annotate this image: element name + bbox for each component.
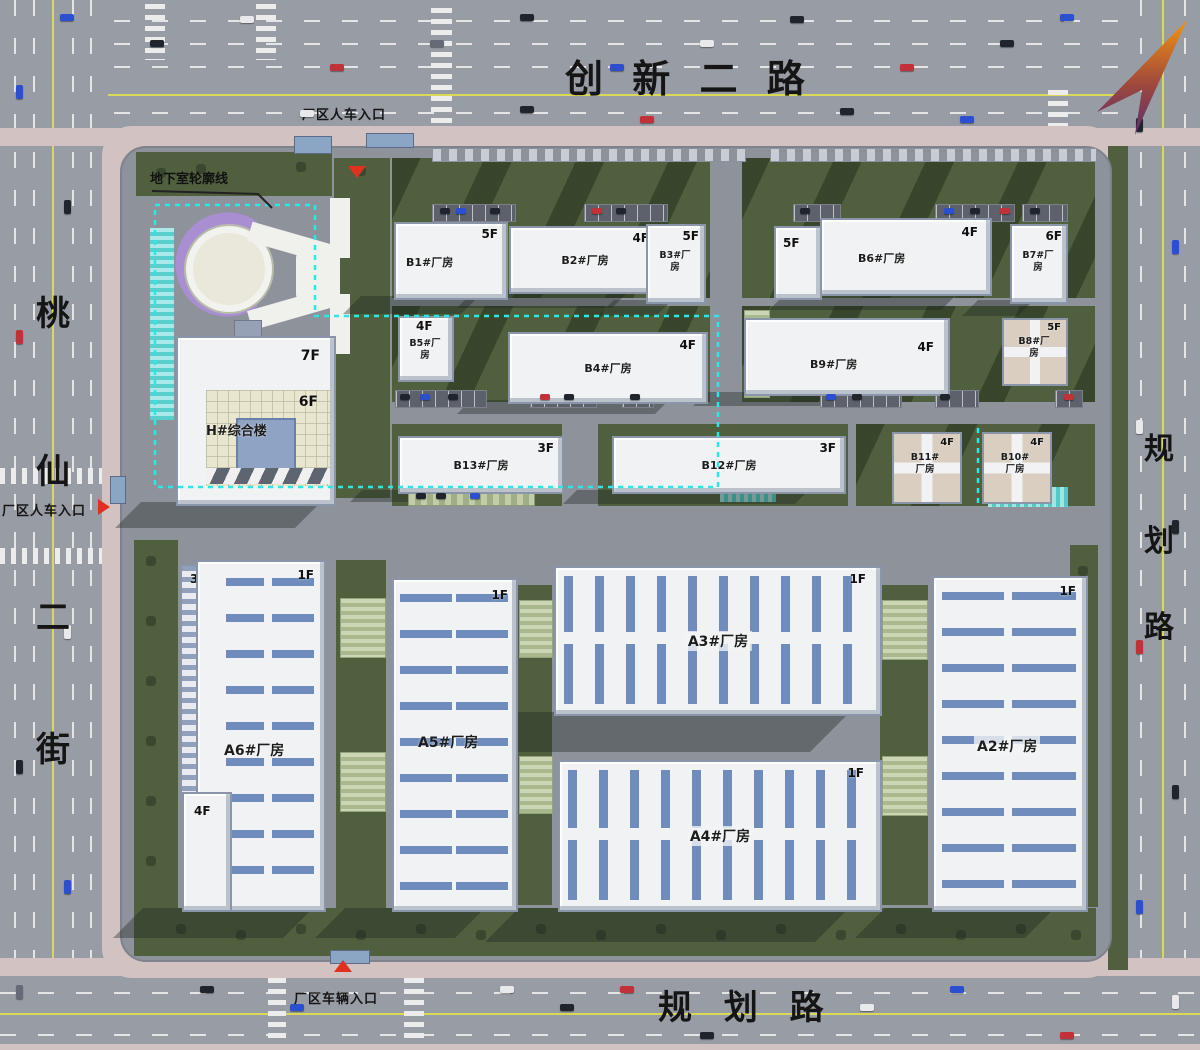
road-label-left-char: 二	[36, 590, 70, 639]
car	[940, 394, 950, 400]
car	[436, 493, 446, 499]
car	[826, 394, 836, 400]
car	[1136, 900, 1143, 914]
north-arrow-icon	[1095, 12, 1195, 137]
car	[900, 64, 914, 71]
cars-layer	[0, 0, 1200, 1050]
car	[150, 40, 164, 47]
car	[1172, 995, 1179, 1009]
car	[64, 200, 71, 214]
car	[500, 986, 514, 993]
car	[1060, 1032, 1074, 1039]
car	[490, 208, 500, 214]
car	[1000, 40, 1014, 47]
car	[470, 493, 480, 499]
car	[1172, 240, 1179, 254]
road-label-left-char: 仙	[36, 444, 70, 493]
car	[944, 208, 954, 214]
car	[620, 986, 634, 993]
car	[1060, 14, 1074, 21]
road-label-left-char: 街	[36, 722, 70, 771]
car	[300, 110, 314, 117]
car	[700, 1032, 714, 1039]
car	[420, 394, 430, 400]
car	[1064, 394, 1074, 400]
car	[700, 40, 714, 47]
car	[200, 986, 214, 993]
car	[60, 14, 74, 21]
car	[290, 1004, 304, 1011]
car	[416, 493, 426, 499]
car	[16, 85, 23, 99]
car	[970, 208, 980, 214]
road-label-right-char: 划	[1144, 516, 1174, 560]
car	[564, 394, 574, 400]
car	[1000, 208, 1010, 214]
road-label-right-char: 路	[1144, 602, 1174, 646]
car	[790, 16, 804, 23]
car	[960, 116, 974, 123]
car	[430, 40, 444, 47]
car	[1136, 640, 1143, 654]
car	[630, 394, 640, 400]
car	[1172, 785, 1179, 799]
car	[616, 208, 626, 214]
car	[440, 208, 450, 214]
car	[860, 1004, 874, 1011]
road-label-top: 创 新 二 路	[565, 48, 813, 103]
car	[330, 64, 344, 71]
road-label-left-char: 桃	[36, 286, 70, 335]
car	[400, 394, 410, 400]
car	[852, 394, 862, 400]
car	[950, 986, 964, 993]
car	[640, 116, 654, 123]
car	[16, 760, 23, 774]
car	[456, 208, 466, 214]
car	[800, 208, 810, 214]
car	[1030, 208, 1040, 214]
car	[540, 394, 550, 400]
car	[560, 1004, 574, 1011]
car	[16, 330, 23, 344]
car	[64, 880, 71, 894]
car	[520, 106, 534, 113]
site-plan-canvas: { "roads": { "top": {"label": "创 新 二 路"}…	[0, 0, 1200, 1050]
car	[16, 985, 23, 999]
car	[520, 14, 534, 21]
car	[1136, 420, 1143, 434]
car	[448, 394, 458, 400]
car	[592, 208, 602, 214]
car	[240, 16, 254, 23]
road-label-bottom: 规 划 路	[658, 980, 834, 1029]
road-label-right-char: 规	[1144, 424, 1174, 468]
car	[840, 108, 854, 115]
